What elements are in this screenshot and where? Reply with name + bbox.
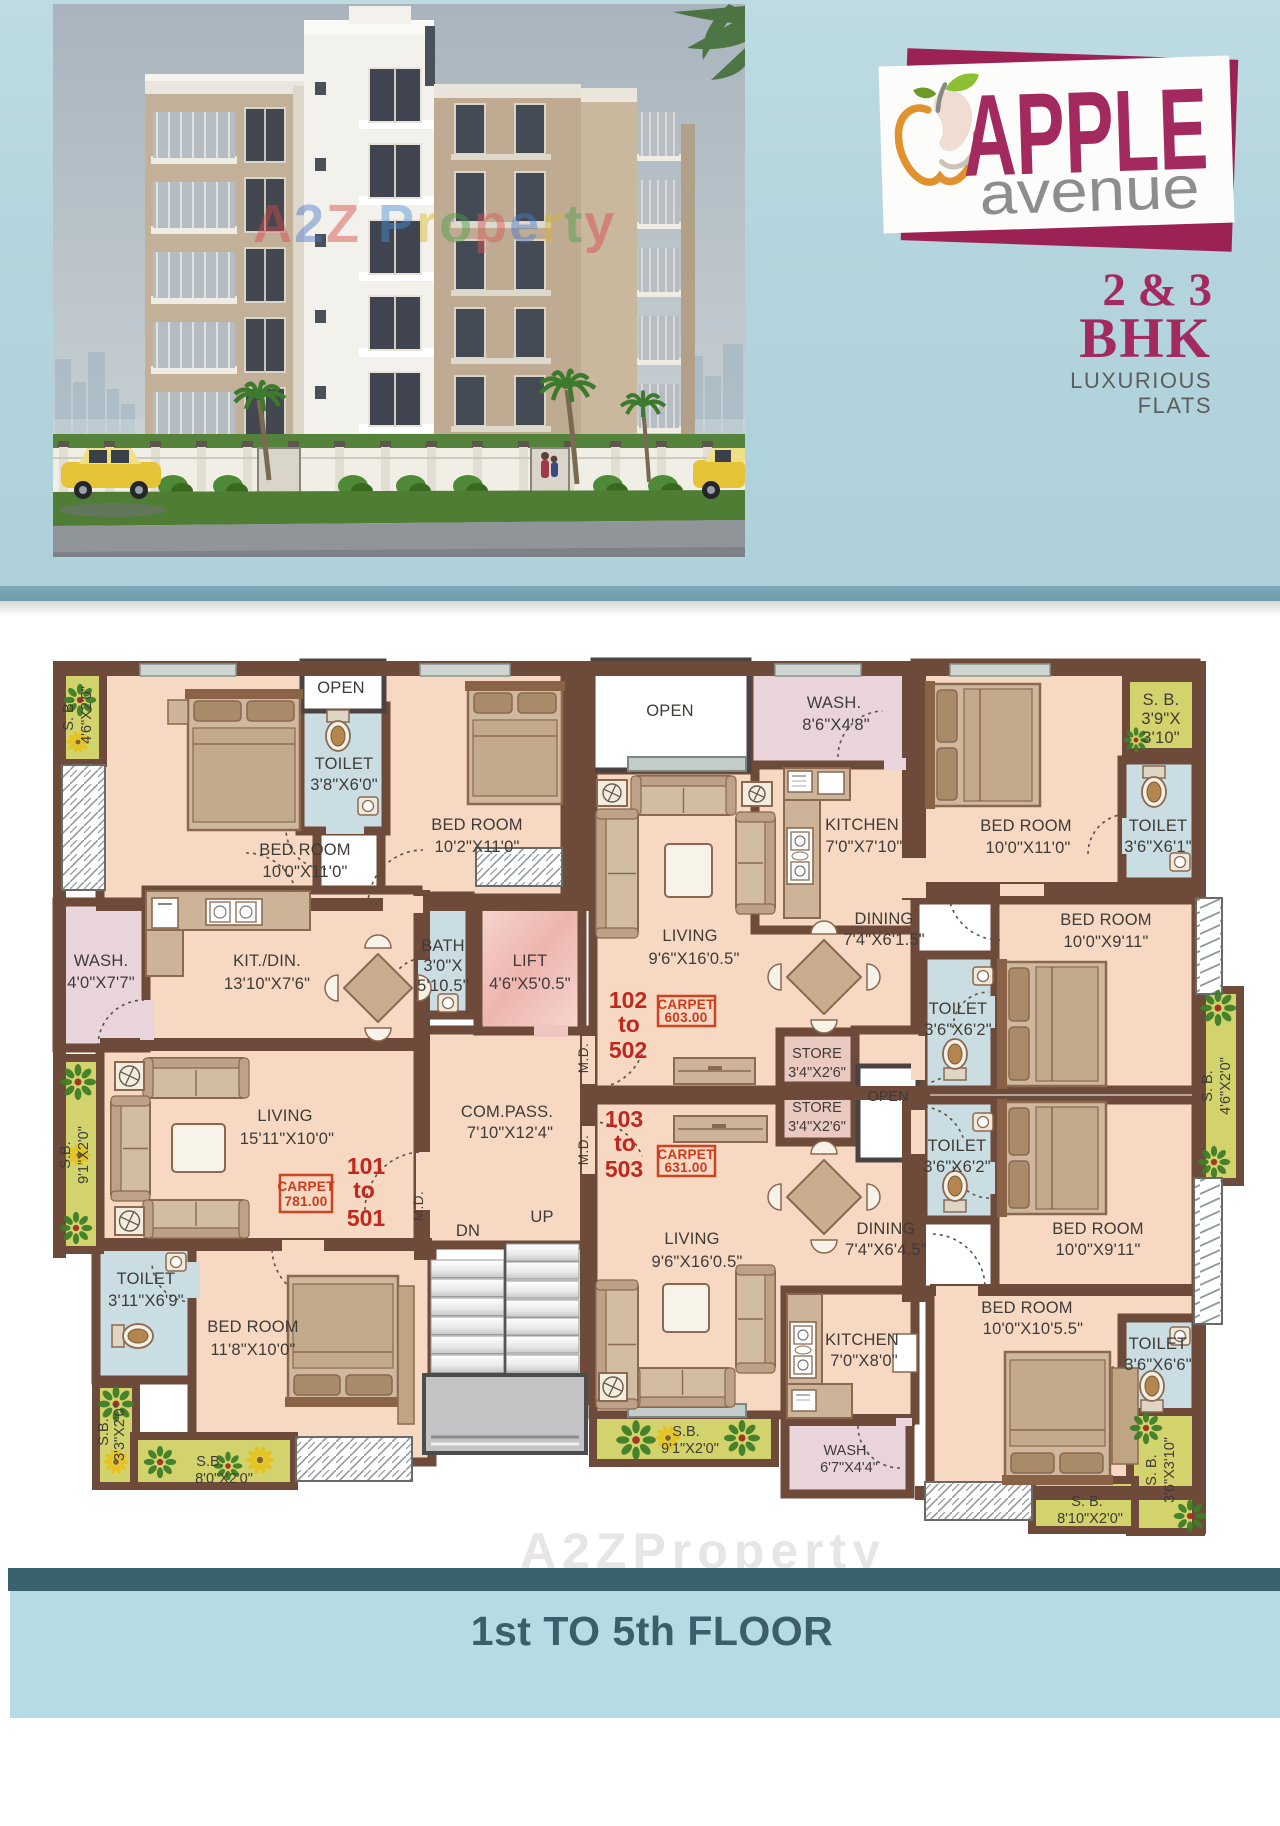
svg-text:101: 101 — [347, 1153, 386, 1179]
svg-text:9'6"X16'0.5": 9'6"X16'0.5" — [648, 950, 739, 968]
svg-text:WASH.: WASH. — [74, 952, 128, 970]
svg-text:10'0"X11'0": 10'0"X11'0" — [262, 863, 347, 881]
svg-text:7'4"X6'4.5": 7'4"X6'4.5" — [845, 1241, 927, 1259]
svg-text:781.00: 781.00 — [284, 1194, 327, 1209]
svg-text:S.B.: S.B. — [58, 1141, 74, 1168]
svg-text:BED ROOM: BED ROOM — [1060, 911, 1151, 929]
svg-text:WASH.: WASH. — [807, 694, 861, 712]
svg-text:OPEN: OPEN — [867, 1089, 908, 1105]
svg-text:TOILET: TOILET — [1129, 817, 1188, 835]
svg-text:OPEN: OPEN — [317, 679, 365, 697]
svg-text:TOILET: TOILET — [315, 755, 374, 773]
svg-text:to: to — [614, 1130, 636, 1156]
svg-text:A2Z Property: A2Z Property — [253, 194, 616, 254]
svg-text:102: 102 — [609, 987, 647, 1013]
svg-text:9'1"X2'0": 9'1"X2'0" — [76, 1126, 92, 1184]
svg-text:4'6"X2'0": 4'6"X2'0" — [79, 686, 95, 744]
svg-text:LIVING: LIVING — [662, 927, 717, 945]
svg-text:103: 103 — [605, 1106, 643, 1132]
svg-text:11'8"X10'0": 11'8"X10'0" — [210, 1341, 295, 1359]
svg-text:7'4"X6'1.5": 7'4"X6'1.5" — [843, 931, 925, 949]
svg-text:S.B.: S.B. — [672, 1424, 699, 1440]
svg-text:DINING: DINING — [857, 1220, 916, 1238]
svg-text:M.D.: M.D. — [576, 1135, 591, 1166]
svg-text:BED ROOM: BED ROOM — [980, 817, 1071, 835]
svg-text:3'11"X6'9": 3'11"X6'9" — [108, 1292, 184, 1310]
svg-text:TOILET: TOILET — [117, 1270, 176, 1288]
svg-text:15'11"X10'0": 15'11"X10'0" — [240, 1130, 334, 1148]
svg-text:CARPET: CARPET — [277, 1179, 335, 1194]
svg-text:KITCHEN: KITCHEN — [825, 816, 899, 834]
svg-text:S.B.: S.B. — [96, 1418, 112, 1445]
svg-text:BED ROOM: BED ROOM — [1052, 1220, 1143, 1238]
svg-text:S. B.: S. B. — [1200, 1070, 1216, 1101]
svg-text:BED ROOM: BED ROOM — [207, 1318, 298, 1336]
svg-text:OPEN: OPEN — [646, 702, 694, 720]
svg-text:KITCHEN: KITCHEN — [825, 1331, 899, 1349]
svg-text:BED ROOM: BED ROOM — [431, 816, 522, 834]
svg-text:BED ROOM: BED ROOM — [981, 1299, 1072, 1317]
svg-text:3'6"X6'2": 3'6"X6'2" — [924, 1021, 992, 1039]
svg-text:3'8"X6'0": 3'8"X6'0" — [310, 776, 378, 794]
svg-text:S. B.: S. B. — [61, 699, 77, 730]
svg-text:10'0"X9'11": 10'0"X9'11" — [1055, 1241, 1140, 1259]
svg-text:TOILET: TOILET — [928, 1137, 987, 1155]
svg-text:avenue: avenue — [978, 154, 1200, 228]
svg-text:7'0"X7'10": 7'0"X7'10" — [826, 838, 903, 856]
svg-text:M.D.: M.D. — [411, 1191, 426, 1222]
svg-text:M.D.: M.D. — [576, 1043, 591, 1074]
svg-text:UP: UP — [530, 1208, 553, 1226]
svg-text:S. B.: S. B. — [1071, 1494, 1102, 1510]
svg-text:to: to — [353, 1177, 375, 1203]
svg-text:10'2"X11'0": 10'2"X11'0" — [434, 838, 519, 856]
svg-text:3'3"X2'0": 3'3"X2'0" — [112, 1403, 128, 1461]
svg-text:8'0"X2'0": 8'0"X2'0" — [195, 1471, 253, 1487]
svg-text:3'4"X2'6": 3'4"X2'6" — [788, 1065, 846, 1081]
svg-text:TOILET: TOILET — [1129, 1335, 1188, 1353]
svg-text:501: 501 — [347, 1205, 386, 1231]
svg-text:3'10": 3'10" — [1142, 729, 1180, 747]
svg-text:3'0"X: 3'0"X — [423, 957, 462, 975]
svg-text:3'6"X6'1": 3'6"X6'1" — [1124, 838, 1192, 856]
svg-text:8'6"X4'8": 8'6"X4'8" — [802, 716, 870, 734]
svg-text:13'10"X7'6": 13'10"X7'6" — [224, 975, 310, 993]
svg-text:3'4"X2'6": 3'4"X2'6" — [788, 1119, 846, 1135]
svg-text:DINING: DINING — [855, 910, 914, 928]
svg-text:LIVING: LIVING — [664, 1230, 719, 1248]
svg-text:631.00: 631.00 — [664, 1160, 707, 1175]
svg-text:3'6"X3'10": 3'6"X3'10" — [1162, 1437, 1178, 1503]
svg-text:10'0"X10'5.5": 10'0"X10'5.5" — [983, 1320, 1083, 1338]
svg-text:TOILET: TOILET — [929, 1000, 988, 1018]
svg-text:603.00: 603.00 — [664, 1010, 707, 1025]
svg-text:A2ZProperty: A2ZProperty — [520, 1523, 886, 1568]
svg-text:10'0"X11'0": 10'0"X11'0" — [985, 839, 1070, 857]
svg-text:9'1"X2'0": 9'1"X2'0" — [661, 1441, 719, 1457]
svg-text:KIT./DIN.: KIT./DIN. — [233, 952, 301, 970]
svg-text:3'6"X6'2": 3'6"X6'2" — [923, 1158, 991, 1176]
svg-text:502: 502 — [609, 1037, 647, 1063]
svg-text:3'6"X6'6": 3'6"X6'6" — [1124, 1356, 1192, 1374]
svg-text:STORE: STORE — [792, 1100, 842, 1116]
svg-text:BED ROOM: BED ROOM — [259, 841, 350, 859]
svg-text:503: 503 — [605, 1156, 643, 1182]
svg-text:to: to — [618, 1011, 640, 1037]
svg-text:4'6"X2'0": 4'6"X2'0" — [1218, 1057, 1234, 1115]
svg-text:4'0"X7'7": 4'0"X7'7" — [67, 974, 135, 992]
svg-text:3'9"X: 3'9"X — [1141, 710, 1180, 728]
svg-text:STORE: STORE — [792, 1046, 842, 1062]
svg-text:WASH.: WASH. — [824, 1443, 871, 1459]
svg-text:S. B.: S. B. — [1143, 691, 1180, 709]
svg-text:7'0"X8'0": 7'0"X8'0" — [830, 1352, 898, 1370]
svg-text:LIVING: LIVING — [257, 1107, 312, 1125]
svg-text:7'10"X12'4": 7'10"X12'4" — [467, 1124, 553, 1142]
svg-text:5'10.5": 5'10.5" — [417, 977, 469, 995]
svg-text:DN: DN — [456, 1222, 480, 1240]
svg-text:COM.PASS.: COM.PASS. — [461, 1103, 553, 1121]
svg-text:BATH: BATH — [421, 937, 465, 955]
svg-text:6'7"X4'4": 6'7"X4'4" — [820, 1460, 878, 1476]
svg-text:10'0"X9'11": 10'0"X9'11" — [1063, 933, 1148, 951]
svg-text:LIFT: LIFT — [513, 952, 548, 970]
svg-text:8'10"X2'0": 8'10"X2'0" — [1057, 1511, 1123, 1527]
svg-text:S.B.: S.B. — [196, 1454, 223, 1470]
svg-text:9'6"X16'0.5": 9'6"X16'0.5" — [651, 1253, 742, 1271]
svg-text:S. B.: S. B. — [1144, 1454, 1160, 1485]
svg-text:4'6"X5'0.5": 4'6"X5'0.5" — [489, 975, 571, 993]
